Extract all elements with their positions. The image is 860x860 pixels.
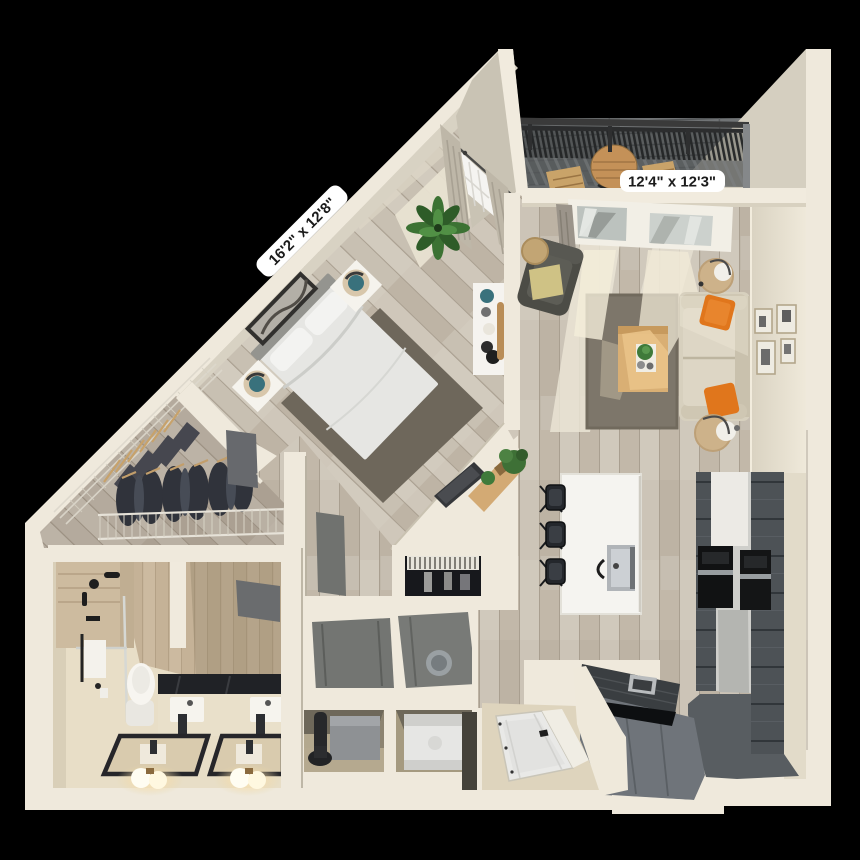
- svg-text:12'4" x 12'3": 12'4" x 12'3": [628, 174, 716, 191]
